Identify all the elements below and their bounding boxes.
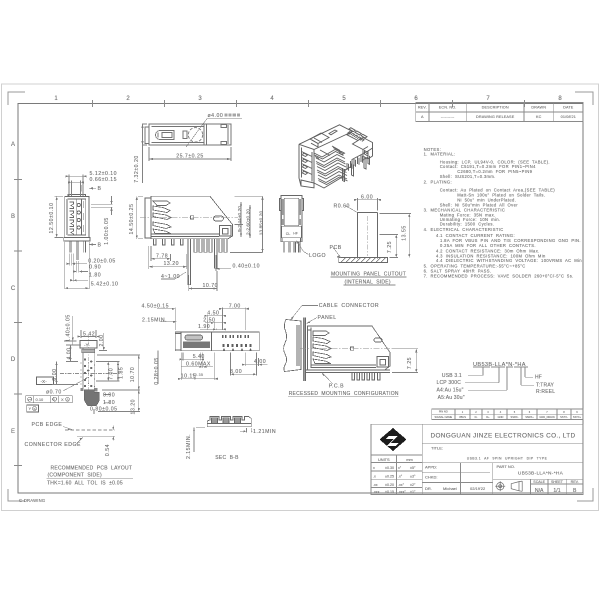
svg-text:0.10: 0.10	[36, 397, 45, 402]
svg-text:7.32±0.20: 7.32±0.20	[134, 155, 140, 183]
svg-text:1.80: 1.80	[89, 273, 101, 279]
svg-text:CHKD:: CHKD:	[425, 475, 437, 480]
svg-text:±3°: ±3°	[410, 475, 416, 479]
svg-text:x: x	[373, 466, 375, 470]
svg-text:D-: D-	[475, 415, 478, 419]
svg-text:GND_DRAIN: GND_DRAIN	[539, 415, 554, 419]
svg-text:6.00: 6.00	[361, 194, 373, 200]
svg-text:.xx: .xx	[373, 483, 378, 487]
svg-text:25.7±0.25: 25.7±0.25	[176, 154, 204, 160]
svg-text:±0.30: ±0.30	[385, 466, 394, 470]
svg-text:X: X	[61, 397, 64, 402]
svg-text:0.90: 0.90	[103, 392, 115, 398]
svg-text:0.25A MIN FOR ALL OTHER C: 0.25A MIN FOR ALL OTHER CONTACTS.	[440, 243, 536, 248]
svg-text:PANEL: PANEL	[318, 315, 337, 321]
svg-text:2-2.60±0.20: 2-2.60±0.20	[246, 209, 251, 235]
svg-text:(COMPONENT SIDE): (COMPONENT SIDE)	[48, 473, 102, 479]
svg-text:REV.: REV.	[571, 480, 579, 484]
svg-text:.xxx°: .xxx°	[398, 490, 406, 494]
svg-text:7.78: 7.78	[156, 253, 168, 259]
svg-text:±0.25: ±0.25	[385, 475, 394, 479]
svg-text:4.50±0.15: 4.50±0.15	[142, 304, 170, 310]
svg-text:APPD:: APPD:	[425, 465, 437, 470]
svg-text:Michael: Michael	[443, 486, 457, 491]
svg-text:DRAWN: DRAWN	[531, 106, 546, 110]
svg-text:-0: -0	[192, 376, 196, 380]
svg-text:R:REEL: R:REEL	[536, 389, 555, 395]
svg-text:D: D	[11, 357, 16, 363]
svg-text:P.C.B: P.C.B	[329, 384, 344, 390]
svg-text:LCP 300C: LCP 300C	[437, 380, 462, 386]
svg-text:2. PLATING:: 2. PLATING:	[424, 180, 452, 185]
svg-text:SHEET: SHEET	[551, 480, 564, 484]
svg-text:x°: x°	[398, 466, 402, 470]
svg-text:4.50: 4.50	[207, 310, 219, 316]
svg-text:1. MATERIAL:: 1. MATERIAL:	[424, 152, 456, 157]
svg-text:C2680,T=0.2mm FOR PIN5~PIN9: C2680,T=0.2mm FOR PIN5~PIN9	[457, 169, 532, 174]
svg-text:0.60MAX: 0.60MAX	[186, 361, 211, 367]
svg-text:LOGO: LOGO	[309, 253, 326, 259]
svg-text:REV.: REV.	[418, 106, 427, 110]
svg-text:RECESSED MOUNTING CONFIGURAT: RECESSED MOUNTING CONFIGURATION	[289, 391, 399, 397]
svg-text:7.25: 7.25	[387, 241, 393, 253]
svg-text:0.90: 0.90	[89, 265, 101, 271]
svg-text:B: B	[98, 242, 102, 248]
svg-text:.x: .x	[373, 475, 376, 479]
svg-text:KC: KC	[536, 115, 542, 119]
svg-text:SSTX-: SSTX-	[560, 415, 568, 419]
svg-text:S: S	[66, 398, 68, 402]
svg-text:1/1: 1/1	[553, 488, 560, 494]
svg-text:Y: Y	[29, 406, 32, 411]
svg-text:1.90: 1.90	[198, 324, 210, 330]
svg-text:USB 3.1: USB 3.1	[442, 373, 462, 379]
svg-text:THK=1.60 ALL TOL IS ±0.05: THK=1.60 ALL TOL IS ±0.05	[47, 480, 123, 486]
svg-text:DESCRIPTION: DESCRIPTION	[482, 106, 509, 110]
svg-text:B: B	[11, 214, 15, 220]
svg-text:4.00: 4.00	[67, 347, 73, 359]
svg-text:A: A	[11, 142, 15, 148]
svg-text:1.40±0.05: 1.40±0.05	[65, 314, 71, 342]
svg-text:RECOMMENDED PCB LAYOUT: RECOMMENDED PCB LAYOUT	[51, 465, 133, 471]
svg-text:4~1.00: 4~1.00	[161, 274, 180, 280]
svg-text:0.40±0.10: 0.40±0.10	[233, 263, 261, 269]
svg-text:10.70: 10.70	[130, 367, 136, 382]
svg-text:R0.60: R0.60	[334, 204, 350, 210]
svg-text:PIN NO: PIN NO	[439, 410, 448, 414]
svg-text:T:TRAY: T:TRAY	[536, 383, 555, 389]
svg-text:HF: HF	[535, 375, 542, 381]
svg-text:MOUNTING PANEL CUTOUT: MOUNTING PANEL CUTOUT	[331, 271, 406, 277]
svg-text:1.21MIN: 1.21MIN	[253, 429, 276, 435]
svg-text:PCB: PCB	[330, 245, 342, 251]
svg-text:02/19'22: 02/19'22	[470, 486, 486, 491]
svg-text:±1°: ±1°	[410, 490, 416, 494]
svg-text:A: A	[421, 115, 424, 119]
svg-text:GND: GND	[498, 415, 504, 419]
svg-text:9-2.44±0.20: 9-2.44±0.20	[237, 206, 242, 232]
svg-text:CABLE CONNECTOR: CABLE CONNECTOR	[319, 303, 380, 309]
svg-text:USB3.1 AF 9PIN UPRIGHT DIP: USB3.1 AF 9PIN UPRIGHT DIP TYPE	[467, 457, 548, 461]
svg-text:.xx°: .xx°	[398, 483, 405, 487]
svg-text:2.15MIN.: 2.15MIN.	[142, 317, 167, 323]
svg-text:CL: CL	[286, 232, 291, 236]
svg-text:ECN. NO.: ECN. NO.	[439, 106, 457, 110]
svg-text:E: E	[11, 429, 15, 435]
svg-text:-Y-: -Y-	[84, 342, 90, 347]
svg-text:D+: D+	[486, 415, 490, 419]
svg-text:5.40: 5.40	[193, 354, 205, 360]
svg-text:4.4 DIELECTRIC WITHSTANDING: 4.4 DIELECTRIC WITHSTANDING VOLTAGE: 100…	[436, 258, 582, 263]
svg-text:±0.15: ±0.15	[385, 490, 394, 494]
svg-text:----------: ----------	[441, 115, 455, 119]
svg-text:±5°: ±5°	[410, 466, 416, 470]
svg-text:14.50±0.25: 14.50±0.25	[129, 204, 135, 235]
svg-text:DATE: DATE	[563, 106, 574, 110]
svg-text:12.50±0.10: 12.50±0.10	[49, 203, 55, 234]
svg-text:VBUS: VBUS	[459, 415, 466, 419]
svg-text:4.00: 4.00	[254, 359, 266, 365]
svg-text:Durability: 1500 Cycles.: Durability: 1500 Cycles.	[440, 222, 495, 227]
svg-text:DR.: DR.	[425, 486, 432, 491]
svg-text:SEC B-B: SEC B-B	[215, 455, 239, 461]
svg-text:2.15MIN.: 2.15MIN.	[186, 434, 192, 459]
svg-text:S: S	[33, 407, 35, 411]
svg-text:7.00: 7.00	[108, 368, 114, 380]
svg-text:A4:Au 15u": A4:Au 15u"	[437, 388, 464, 394]
svg-text:DRAWING RELEASE: DRAWING RELEASE	[476, 115, 515, 119]
svg-text:1.80: 1.80	[103, 400, 115, 406]
svg-text:SSTX+: SSTX+	[573, 415, 582, 419]
svg-text:C: C	[11, 286, 16, 292]
svg-text:HF: HF	[293, 231, 298, 235]
svg-text:PCB EDGE: PCB EDGE	[32, 422, 63, 428]
svg-text:.xxx: .xxx	[373, 490, 380, 494]
svg-text:01/08'21: 01/08'21	[561, 115, 576, 119]
svg-text:1.85: 1.85	[118, 367, 124, 379]
svg-text:±0.20: ±0.20	[385, 483, 394, 487]
svg-text:UNITS: UNITS	[378, 457, 390, 462]
svg-text:2.00: 2.00	[99, 334, 105, 346]
svg-text:SIGNAL NAME: SIGNAL NAME	[434, 415, 452, 419]
svg-text:13.20: 13.20	[164, 261, 179, 267]
svg-text:(INTERNAL SIDE): (INTERNAL SIDE)	[345, 279, 391, 285]
svg-text:1.00±0.05: 1.00±0.05	[104, 217, 110, 245]
svg-text:0.20±0.05: 0.20±0.05	[88, 258, 116, 264]
svg-text:ø4.00: ø4.00	[208, 113, 224, 119]
svg-text:DONGGUAN JINZE ELECTRONICS: DONGGUAN JINZE ELECTRONICS CO., LTD	[431, 433, 576, 440]
svg-text:0.28±0.05: 0.28±0.05	[154, 357, 160, 385]
svg-text:.x°: .x°	[398, 475, 403, 479]
svg-text:13.55: 13.55	[402, 225, 408, 240]
svg-text:SSRX-: SSRX-	[511, 415, 519, 419]
svg-text:8.00: 8.00	[52, 368, 58, 380]
svg-text:-X-: -X-	[41, 379, 48, 384]
svg-text:0.80±0.05: 0.80±0.05	[90, 406, 118, 412]
svg-text:TITLE:: TITLE:	[431, 446, 443, 451]
svg-text:0.66±0.15: 0.66±0.15	[90, 177, 118, 183]
svg-text:7. RECOMMENDED PROCESS: VAV: 7. RECOMMENDED PROCESS: VAVE SOLDER 260+…	[424, 274, 574, 279]
svg-text:SCALE: SCALE	[533, 480, 545, 484]
svg-text:SSRX+: SSRX+	[525, 415, 534, 419]
svg-text:7.25: 7.25	[407, 357, 413, 369]
svg-text:C-DRAWING: C-DRAWING	[19, 498, 45, 503]
svg-text:N/A: N/A	[535, 488, 544, 494]
svg-text:8.00: 8.00	[230, 369, 242, 375]
svg-text:5.42: 5.42	[83, 331, 95, 337]
svg-text:13.85±0.20: 13.85±0.20	[259, 210, 264, 235]
svg-text:PART NO.: PART NO.	[497, 464, 515, 469]
svg-text:UB53B-LLA*N-*HA: UB53B-LLA*N-*HA	[518, 471, 564, 477]
svg-text:13.20: 13.20	[131, 399, 137, 414]
svg-text:Shell: SUS201,T=0.3mm.: Shell: SUS201,T=0.3mm.	[440, 174, 496, 179]
svg-text:ø0.70: ø0.70	[46, 389, 62, 395]
svg-text:5.42±0.10: 5.42±0.10	[91, 281, 119, 287]
svg-text:B: B	[98, 186, 102, 192]
svg-text:±2°: ±2°	[410, 483, 416, 487]
svg-text:10.70: 10.70	[203, 283, 218, 289]
svg-text:mm: mm	[406, 457, 412, 462]
svg-text:B: B	[573, 488, 577, 494]
svg-text:7.00: 7.00	[229, 304, 241, 310]
svg-text:2.50: 2.50	[203, 317, 215, 323]
svg-text:CONNECTOR EDGE: CONNECTOR EDGE	[25, 442, 82, 448]
svg-text:0.54: 0.54	[105, 444, 111, 456]
svg-text:A5:Au 30u": A5:Au 30u"	[438, 395, 465, 401]
svg-text:4. ELECTRICAL CHARACTERISTIC: 4. ELECTRICAL CHARACTERISTIC	[424, 227, 504, 232]
